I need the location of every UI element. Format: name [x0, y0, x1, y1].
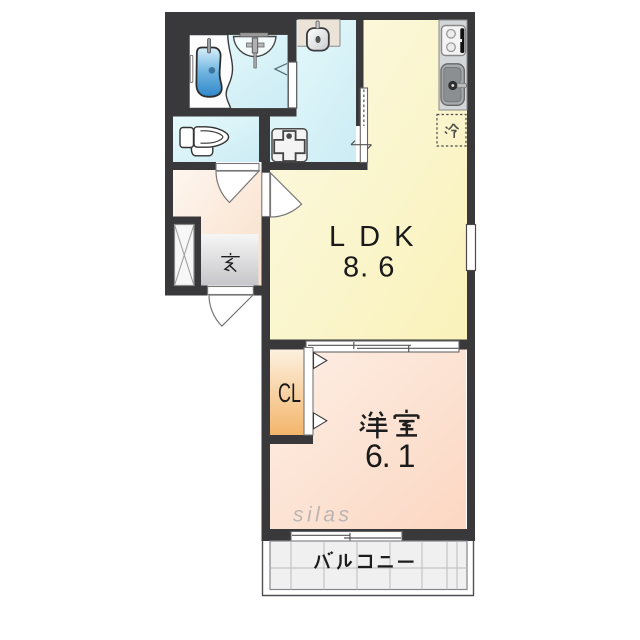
svg-text:8. 6: 8. 6	[343, 252, 395, 284]
svg-text:CL: CL	[278, 378, 301, 408]
svg-text:6. 1: 6. 1	[365, 438, 415, 474]
svg-text:silas: silas	[293, 504, 353, 527]
svg-text:LDK: LDK	[329, 221, 427, 253]
